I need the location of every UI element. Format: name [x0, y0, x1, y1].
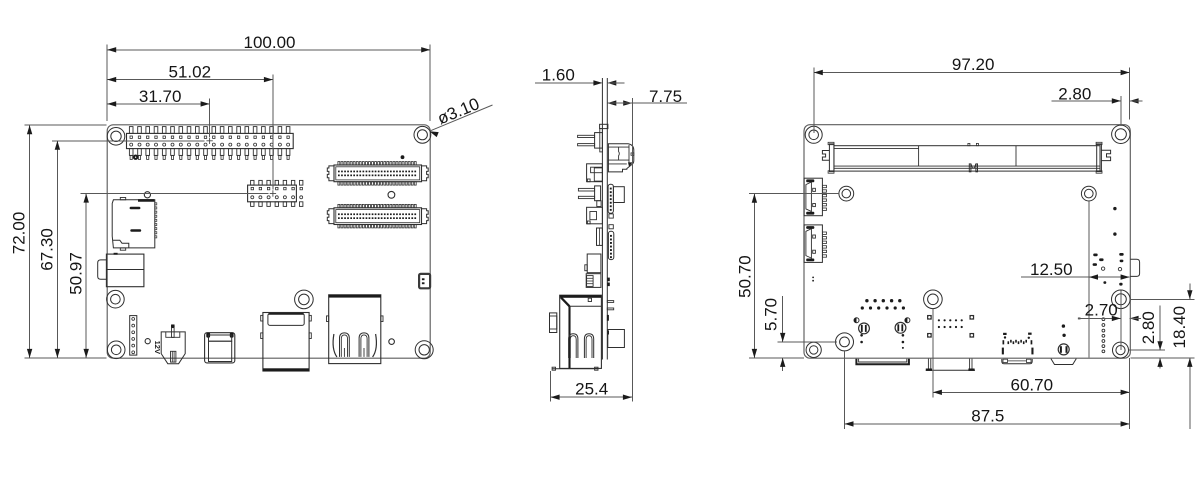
svg-text:67.30: 67.30 [37, 228, 56, 271]
svg-text:12V: 12V [153, 341, 162, 354]
svg-text:50.70: 50.70 [736, 255, 755, 298]
svg-text:100.00: 100.00 [244, 33, 296, 52]
svg-text:18.40: 18.40 [1170, 306, 1189, 349]
svg-text:ø3.10: ø3.10 [435, 94, 482, 128]
svg-text:97.20: 97.20 [952, 55, 995, 74]
svg-text:2.80: 2.80 [1139, 311, 1158, 344]
svg-text:87.5: 87.5 [971, 407, 1004, 426]
svg-text:50.97: 50.97 [67, 252, 86, 295]
svg-text:60.70: 60.70 [1011, 375, 1054, 394]
svg-text:72.00: 72.00 [10, 212, 29, 255]
svg-text:1.60: 1.60 [542, 65, 575, 84]
svg-text:2.80: 2.80 [1058, 84, 1091, 103]
svg-text:12.50: 12.50 [1030, 260, 1073, 279]
svg-text:2.70: 2.70 [1085, 300, 1118, 319]
svg-text:5.70: 5.70 [762, 298, 781, 331]
svg-text:51.02: 51.02 [169, 63, 212, 82]
svg-text:25.4: 25.4 [575, 379, 608, 398]
svg-text:31.70: 31.70 [139, 87, 182, 106]
